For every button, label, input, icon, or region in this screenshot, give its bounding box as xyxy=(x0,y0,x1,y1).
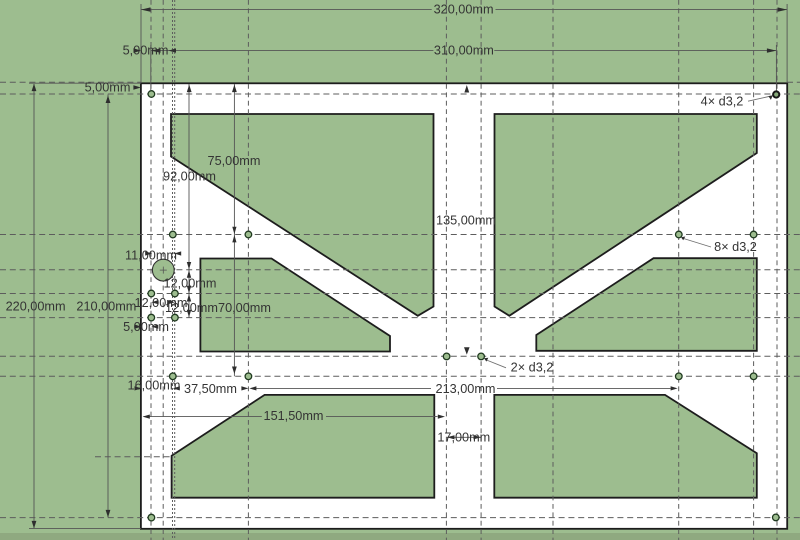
svg-text:12,00mm: 12,00mm xyxy=(165,301,218,315)
svg-text:210,00mm: 210,00mm xyxy=(76,299,136,313)
svg-text:75,00mm: 75,00mm xyxy=(208,154,261,168)
svg-text:92,00mm: 92,00mm xyxy=(163,169,216,183)
svg-text:70,00mm: 70,00mm xyxy=(218,301,271,315)
svg-text:135,00mm: 135,00mm xyxy=(436,214,496,228)
svg-text:310,00mm: 310,00mm xyxy=(434,43,494,57)
svg-text:5,00mm: 5,00mm xyxy=(123,43,169,57)
svg-text:4× d3,2: 4× d3,2 xyxy=(701,95,744,109)
svg-text:151,50mm: 151,50mm xyxy=(264,409,324,423)
svg-text:213,00mm: 213,00mm xyxy=(436,382,496,396)
svg-text:5,00mm: 5,00mm xyxy=(123,320,169,334)
svg-text:2× d3,2: 2× d3,2 xyxy=(511,360,554,374)
svg-text:17,00mm: 17,00mm xyxy=(437,430,490,444)
svg-text:16,00mm: 16,00mm xyxy=(128,379,181,393)
svg-text:8× d3,2: 8× d3,2 xyxy=(714,240,757,254)
svg-text:220,00mm: 220,00mm xyxy=(6,299,66,313)
svg-text:11,00mm: 11,00mm xyxy=(125,249,177,263)
svg-text:5,00mm: 5,00mm xyxy=(85,81,131,95)
svg-text:37,50mm: 37,50mm xyxy=(184,382,237,396)
svg-text:320,00mm: 320,00mm xyxy=(434,2,494,16)
